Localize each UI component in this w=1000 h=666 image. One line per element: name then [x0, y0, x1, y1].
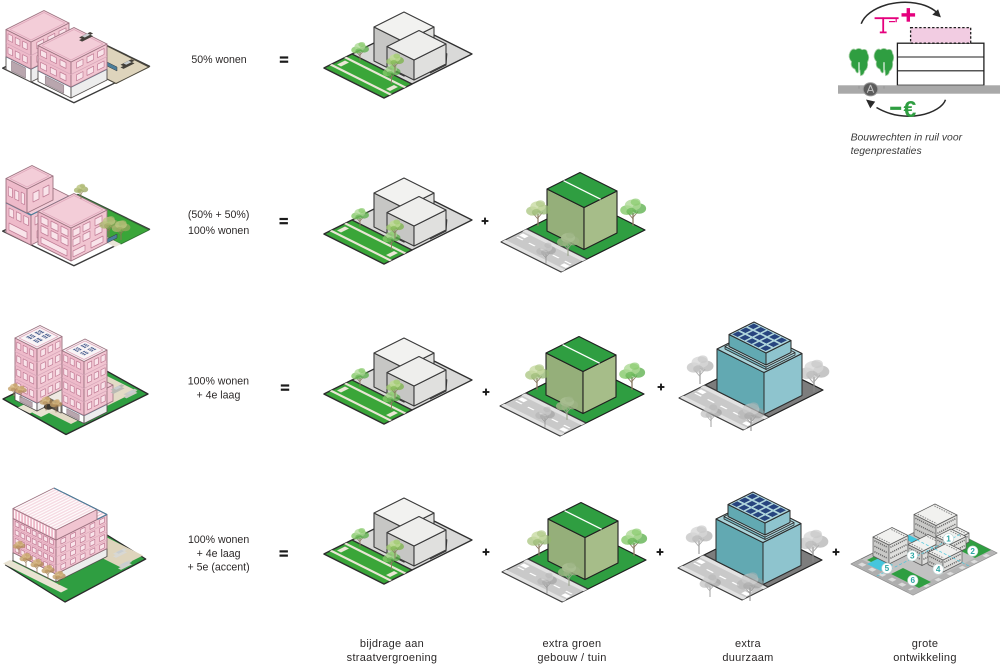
- svg-text:100% wonen: 100% wonen: [188, 534, 249, 546]
- svg-text:Bouwrechten in ruil voor: Bouwrechten in ruil voor: [851, 133, 963, 144]
- svg-text:50% wonen: 50% wonen: [191, 54, 246, 66]
- svg-text:(50% + 50%): (50% + 50%): [188, 209, 250, 221]
- svg-text:tegenprestaties: tegenprestaties: [851, 146, 922, 157]
- svg-text:1: 1: [946, 535, 951, 544]
- svg-text:duurzaam: duurzaam: [722, 652, 773, 664]
- svg-text:4: 4: [936, 565, 941, 574]
- svg-text:extra: extra: [735, 638, 762, 650]
- svg-text:ontwikkeling: ontwikkeling: [893, 652, 957, 664]
- svg-text:3: 3: [910, 552, 915, 561]
- svg-text:+ 4e laag: + 4e laag: [196, 390, 240, 402]
- svg-text:2: 2: [970, 547, 975, 556]
- svg-text:6: 6: [911, 576, 916, 585]
- svg-text:+ 4e laag: + 4e laag: [197, 548, 241, 560]
- svg-text:5: 5: [885, 564, 890, 573]
- svg-text:grote: grote: [912, 638, 939, 650]
- svg-text:straatvergroening: straatvergroening: [347, 652, 438, 664]
- svg-text:100% wonen: 100% wonen: [188, 376, 249, 388]
- svg-text:€: €: [904, 96, 917, 122]
- svg-text:bijdrage aan: bijdrage aan: [360, 638, 424, 650]
- svg-text:extra groen: extra groen: [543, 638, 602, 650]
- svg-text:+ 5e (accent): + 5e (accent): [188, 562, 250, 574]
- svg-text:gebouw / tuin: gebouw / tuin: [537, 652, 606, 664]
- svg-text:100% wonen: 100% wonen: [188, 225, 249, 237]
